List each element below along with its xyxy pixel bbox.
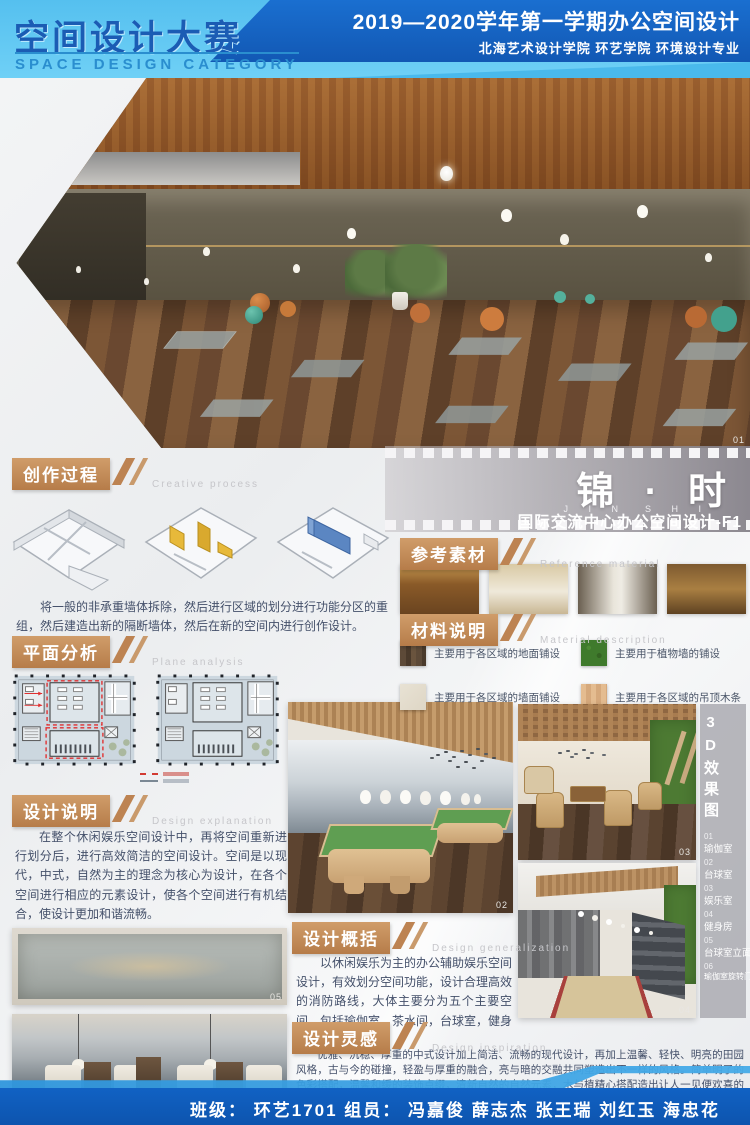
lounge-number-label: 03: [679, 847, 691, 857]
reference-photo-gym: [400, 564, 479, 614]
section-tag-en: Design inspiration: [432, 1043, 548, 1054]
index-title: 3D效果图: [700, 714, 746, 823]
elevation-number-label: 05: [270, 992, 282, 1002]
index-item: 06瑜伽室旋转门: [700, 959, 746, 982]
section-tag-en: Plane analysis: [152, 657, 244, 668]
section-tag-en: Design explanation: [152, 816, 273, 827]
poster: 2019—2020学年第一学期办公空间设计 北海艺术设计学院 环艺学院 环境设计…: [0, 0, 750, 1125]
section-plane-analysis: 平面分析 Plane analysis: [12, 636, 244, 668]
section-tag: 平面分析: [12, 636, 110, 668]
index-label: 台球室立面: [704, 945, 742, 959]
index-num: 05: [704, 936, 742, 945]
hero-render-yoga-room: 01: [0, 78, 750, 448]
hero-number-label: 01: [733, 435, 745, 445]
render-index-bar: 3D效果图 01瑜伽室 02台球室 03娱乐室 04健身房 05台球室立面 06…: [700, 704, 746, 1018]
floor-plan-annotated: [10, 672, 139, 768]
material-label: 主要用于各区域的地面铺设: [434, 646, 560, 661]
poster-title-en: SPACE DESIGN CATEGORY: [15, 52, 299, 73]
pendant-lamps-row: [360, 790, 371, 804]
axon-step2: [140, 492, 262, 596]
section-design-explanation: 设计说明 Design explanation: [12, 795, 273, 827]
project-caption: 国际交流中心办公空间设计-F1: [518, 510, 742, 532]
beige-swatch: [400, 684, 426, 710]
index-item: 04健身房: [700, 907, 746, 933]
legend-dash-red: [140, 773, 158, 775]
index-label: 健身房: [704, 919, 742, 933]
explanation-paragraph-1: 在整个休闲娱乐空间设计中，再将空间重新进行划分后，进行高效简洁的空间设计。空间是…: [15, 828, 287, 924]
render-elevation-05: 05: [12, 928, 287, 1005]
index-num: 04: [704, 910, 742, 919]
index-label: 台球室: [704, 867, 742, 881]
reference-thumbnails: [400, 564, 746, 614]
index-item: 02台球室: [700, 855, 746, 881]
fish-decoration: [558, 752, 562, 754]
index-num: 01: [704, 832, 742, 841]
section-tag: 创作过程: [12, 458, 110, 490]
film-strip-top: [385, 448, 750, 458]
gym-lamps: [578, 911, 584, 917]
pendant-lamp-icon: [210, 1014, 211, 1060]
reference-photo-corridor: [578, 564, 657, 614]
pool-table-legs: [344, 876, 364, 894]
billiards-number-label: 02: [496, 900, 508, 910]
section-reference-material: 参考素材 Reference material: [400, 538, 660, 570]
footer-credits: 班级： 环艺1701 组员： 冯嘉俊 薛志杰 张王瑞 刘红玉 海忠花: [0, 1096, 750, 1121]
index-num: 02: [704, 858, 742, 867]
index-item: 05台球室立面: [700, 933, 746, 959]
index-item: 01瑜伽室: [700, 829, 746, 855]
section-tag-en: Creative process: [152, 479, 259, 490]
section-tag-en: Material description: [540, 635, 667, 646]
caption-text: 将一般的非承重墙体拆除，然后进行区域的划分进行功能分区的重组，然后建造出新的隔断…: [16, 598, 388, 636]
fish-flock-decoration: [436, 754, 440, 756]
index-num: 03: [704, 884, 742, 893]
section-design-inspiration: 设计灵感 Design inspiration: [292, 1022, 548, 1054]
legend-row: [140, 772, 210, 776]
teal-exercise-balls: [245, 306, 263, 324]
pool-table-back: [434, 808, 506, 850]
plan-legend: [140, 772, 210, 786]
pendant-lamps: [440, 166, 453, 181]
legend-label: [163, 772, 189, 776]
render-lounge-room: 03: [518, 704, 696, 860]
axonometric-diagrams: [8, 488, 394, 600]
bar-counter: [524, 766, 554, 794]
index-label: 娱乐室: [704, 893, 742, 907]
floor-plans: [10, 672, 282, 768]
rattan-chair: [638, 782, 662, 810]
pool-table-body: [437, 823, 503, 843]
elevation-warm-glow: [67, 951, 232, 982]
section-design-generalization: 设计概括 Design generalization: [292, 922, 570, 954]
axon-step3: [272, 492, 394, 596]
render-billiards-room: 02: [288, 702, 513, 913]
course-title: 2019—2020学年第一学期办公空间设计: [353, 6, 740, 36]
reference-photo-bright-room: [489, 564, 568, 614]
hero-wood-floor: [0, 300, 750, 448]
section-tag: 设计灵感: [292, 1022, 390, 1054]
gym-floor-mat: [550, 976, 653, 1018]
footer-bar: 班级： 环艺1701 组员： 冯嘉俊 薛志杰 张王瑞 刘红玉 海忠花: [0, 1088, 750, 1125]
rattan-chair: [604, 790, 632, 826]
section-tag: 设计概括: [292, 922, 390, 954]
hero-plant-pot: [392, 292, 408, 310]
section-tag-en: Reference material: [540, 559, 660, 570]
section-material-description: 材料说明 Material description: [400, 614, 667, 646]
reference-photo-lounge: [667, 564, 746, 614]
material-label: 主要用于植物墙的铺设: [615, 646, 720, 661]
legend-row: [140, 779, 210, 783]
section-tag-en: Design generalization: [432, 943, 570, 954]
index-label: 瑜伽室: [704, 841, 742, 855]
gym-number-label: 04: [679, 1005, 691, 1015]
pool-table-front: [324, 824, 434, 894]
legend-line-gray: [140, 780, 158, 782]
wood-table: [570, 786, 606, 802]
section-tag: 参考素材: [400, 538, 498, 570]
material-label: 主要用于各区域的吊顶木条: [615, 690, 741, 705]
material-label: 主要用于各区域的墙面铺设: [434, 690, 560, 705]
floor-plan-clean: [153, 672, 282, 768]
hero-ceiling-cove: [45, 152, 300, 185]
index-item: 03娱乐室: [700, 881, 746, 907]
school-name: 北海艺术设计学院 环艺学院 环境设计专业: [479, 38, 740, 57]
legend-label: [163, 779, 189, 783]
project-title-block: 锦 · 时 J I N S H I 国际交流中心办公空间设计-F1: [385, 446, 750, 532]
material-swatches: 主要用于各区域的地面铺设 主要用于植物墙的铺设 主要用于各区域的墙面铺设 主要用…: [400, 640, 748, 710]
creative-process-caption: 将一般的非承重墙体拆除，然后进行区域的划分进行功能分区的重组，然后建造出新的隔断…: [16, 598, 388, 636]
section-creative-process: 创作过程 Creative process: [12, 458, 259, 490]
section-tag: 材料说明: [400, 614, 498, 646]
section-tag: 设计说明: [12, 795, 110, 827]
rattan-chair: [536, 792, 564, 828]
index-num: 06: [704, 962, 742, 971]
pendant-lamp-icon: [78, 1014, 79, 1060]
axon-step1: [8, 492, 130, 596]
index-label: 瑜伽室旋转门: [704, 971, 742, 982]
